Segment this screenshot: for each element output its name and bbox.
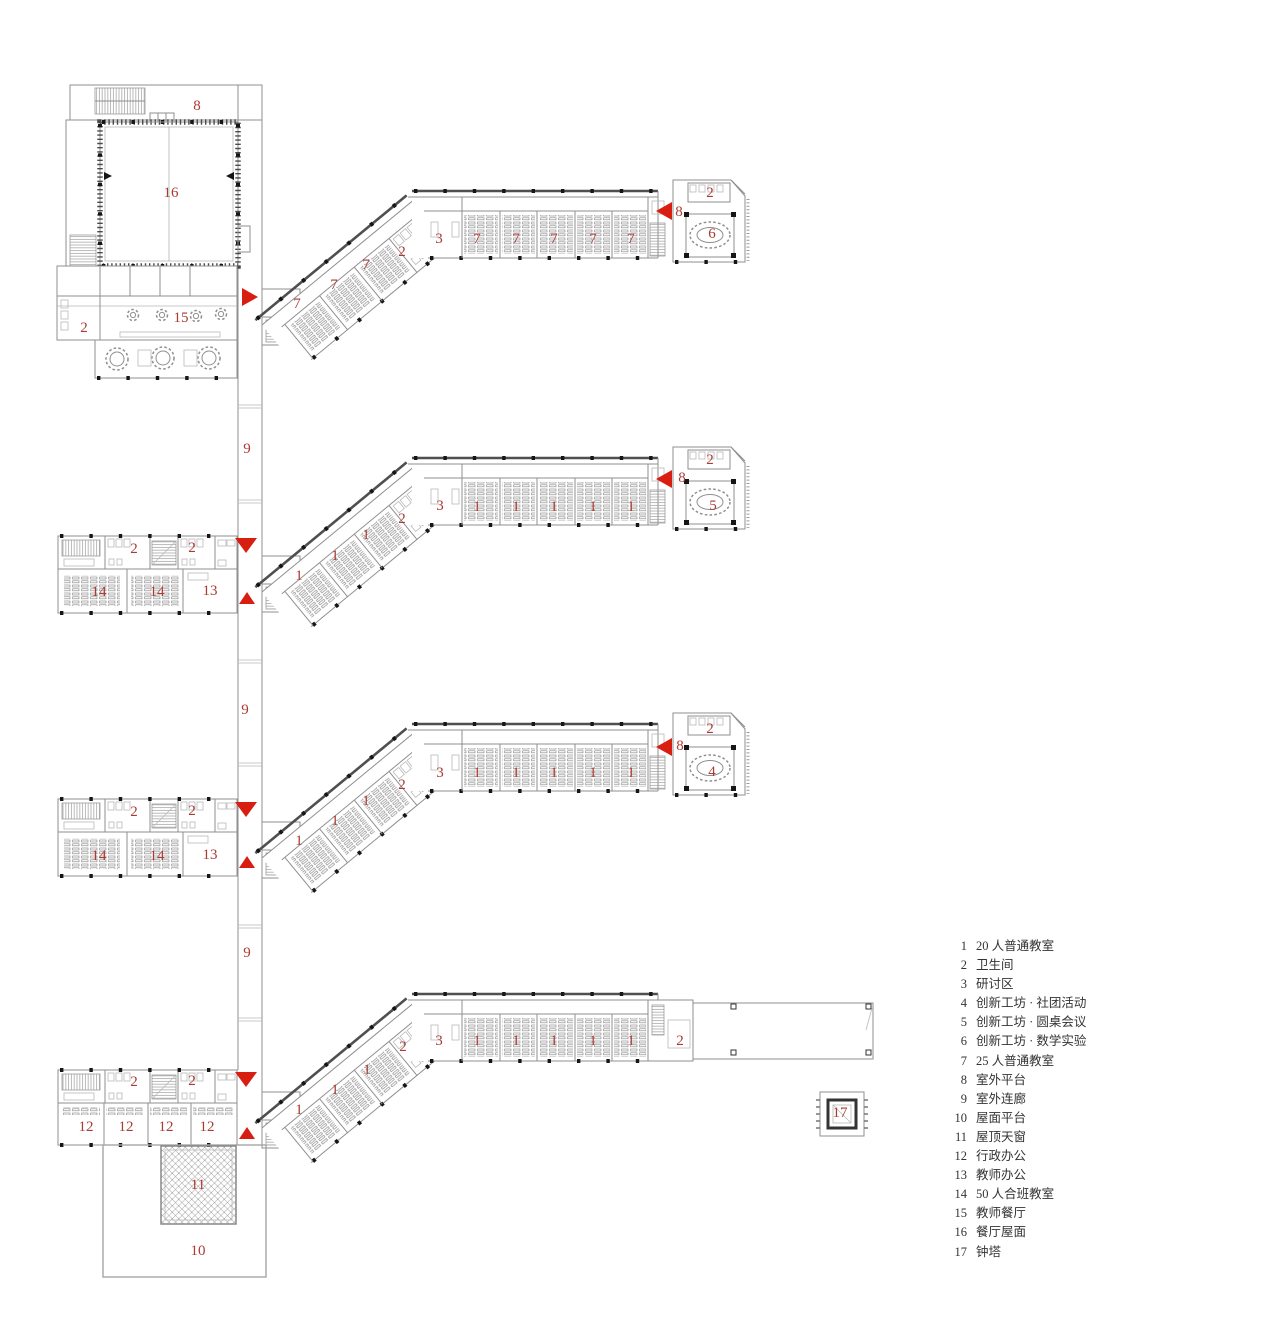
wing-end-block xyxy=(648,1000,693,1061)
legend-number: 15 xyxy=(952,1204,967,1223)
room-label: 1 xyxy=(589,1033,597,1049)
room-label: 1 xyxy=(627,1033,635,1049)
room-label: 1 xyxy=(589,499,597,515)
room-label: 1 xyxy=(295,568,303,584)
room-label: 14 xyxy=(150,848,166,864)
legend-label: 50 人合班教室 xyxy=(976,1185,1054,1204)
entry-marker-up xyxy=(239,592,255,604)
floor-plan-drawing: 8162157772377777826922141413111231111182… xyxy=(0,0,1280,1323)
legend-item: 4创新工坊 · 社团活动 xyxy=(952,994,1086,1013)
entry-marker-up xyxy=(239,856,255,868)
room-label: 9 xyxy=(241,702,249,718)
room-label: 9 xyxy=(243,945,251,961)
room-label: 2 xyxy=(706,721,714,737)
legend-label: 研讨区 xyxy=(976,975,1014,994)
room-label: 3 xyxy=(436,765,444,781)
room-label: 1 xyxy=(627,765,635,781)
room-label: 12 xyxy=(119,1119,134,1135)
legend-item: 11屋顶天窗 xyxy=(952,1128,1086,1147)
room-label: 2 xyxy=(130,1074,138,1090)
room-label: 1 xyxy=(331,1082,339,1098)
legend-number: 14 xyxy=(952,1185,967,1204)
room-label: 7 xyxy=(512,231,520,247)
floor-plan-1-top xyxy=(57,85,748,378)
room-label: 1 xyxy=(473,499,481,515)
room-label: 11 xyxy=(191,1177,205,1193)
legend-number: 12 xyxy=(952,1147,967,1166)
room-label: 5 xyxy=(709,498,717,514)
room-label: 7 xyxy=(293,296,301,312)
room-label: 2 xyxy=(398,777,406,793)
floor-plan-4-bottom xyxy=(58,990,873,1277)
room-label: 8 xyxy=(676,738,684,754)
room-label: 1 xyxy=(363,1062,371,1078)
room-label: 12 xyxy=(200,1119,215,1135)
room-label: 1 xyxy=(362,793,370,809)
entry-marker-right xyxy=(242,288,258,306)
room-label: 12 xyxy=(79,1119,94,1135)
room-label: 2 xyxy=(188,540,196,556)
legend-number: 9 xyxy=(952,1090,967,1109)
room-label: 2 xyxy=(188,1073,196,1089)
room-label: 14 xyxy=(150,584,166,600)
room-label: 16 xyxy=(164,185,180,201)
legend-number: 16 xyxy=(952,1223,967,1242)
legend-item: 13教师办公 xyxy=(952,1166,1086,1185)
banquet-room xyxy=(95,340,237,378)
legend-item: 12行政办公 xyxy=(952,1147,1086,1166)
legend-label: 卫生间 xyxy=(976,956,1014,975)
legend-item: 9室外连廊 xyxy=(952,1090,1086,1109)
legend-number: 1 xyxy=(952,937,967,956)
room-label: 2 xyxy=(130,541,138,557)
legend-item: 10屋面平台 xyxy=(952,1109,1086,1128)
architectural-sheet: 8162157772377777826922141413111231111182… xyxy=(0,0,1280,1323)
room-label: 1 xyxy=(512,1033,520,1049)
floor-plan-2 xyxy=(58,447,748,638)
legend-label: 创新工坊 · 数学实验 xyxy=(976,1032,1086,1051)
roof-platform-strip xyxy=(693,1003,873,1059)
legend-item: 17钟塔 xyxy=(952,1243,1086,1262)
legend-number: 6 xyxy=(952,1032,967,1051)
legend-label: 20 人普通教室 xyxy=(976,937,1054,956)
legend-number: 11 xyxy=(952,1128,967,1147)
room-label: 3 xyxy=(435,231,443,247)
legend-number: 7 xyxy=(952,1052,967,1071)
room-label: 1 xyxy=(512,499,520,515)
room-label: 15 xyxy=(174,310,189,326)
room-label: 7 xyxy=(550,231,558,247)
legend-number: 5 xyxy=(952,1013,967,1032)
room-label: 14 xyxy=(92,584,108,600)
room-label: 7 xyxy=(589,231,597,247)
legend-item: 15教师餐厅 xyxy=(952,1204,1086,1223)
room-label: 7 xyxy=(627,231,635,247)
room-label: 4 xyxy=(708,764,716,780)
room-label: 1 xyxy=(331,813,339,829)
legend-label: 餐厅屋面 xyxy=(976,1223,1026,1242)
room-label: 13 xyxy=(203,583,218,599)
legend-item: 3研讨区 xyxy=(952,975,1086,994)
room-label: 1 xyxy=(550,765,558,781)
room-label: 13 xyxy=(203,847,218,863)
legend-item: 1450 人合班教室 xyxy=(952,1185,1086,1204)
room-label: 2 xyxy=(398,511,406,527)
legend-label: 屋顶天窗 xyxy=(976,1128,1026,1147)
room-label: 8 xyxy=(675,204,683,220)
legend-label: 创新工坊 · 社团活动 xyxy=(976,994,1086,1013)
room-label: 7 xyxy=(330,277,338,293)
room-label: 2 xyxy=(80,320,88,336)
room-label: 3 xyxy=(435,1033,443,1049)
legend-item: 120 人普通教室 xyxy=(952,937,1086,956)
room-label: 1 xyxy=(589,765,597,781)
room-label: 10 xyxy=(191,1243,206,1259)
legend-label: 室外平台 xyxy=(976,1071,1026,1090)
room-label: 1 xyxy=(295,833,303,849)
room-label: 1 xyxy=(295,1102,303,1118)
legend-label: 创新工坊 · 圆桌会议 xyxy=(976,1013,1086,1032)
room-label: 12 xyxy=(159,1119,174,1135)
room-label: 14 xyxy=(92,848,108,864)
room-label: 2 xyxy=(706,452,714,468)
legend: 120 人普通教室2卫生间3研讨区4创新工坊 · 社团活动5创新工坊 · 圆桌会… xyxy=(952,937,1086,1262)
floor-plan-3 xyxy=(58,713,748,904)
room-label: 7 xyxy=(362,257,370,273)
legend-label: 教师餐厅 xyxy=(976,1204,1026,1223)
room-label: 1 xyxy=(550,499,558,515)
room-label: 1 xyxy=(331,548,339,564)
legend-label: 室外连廊 xyxy=(976,1090,1026,1109)
room-label: 2 xyxy=(188,803,196,819)
room-label: 1 xyxy=(473,1033,481,1049)
room-label: 2 xyxy=(676,1033,684,1049)
legend-item: 6创新工坊 · 数学实验 xyxy=(952,1032,1086,1051)
room-label: 2 xyxy=(399,1039,407,1055)
legend-number: 10 xyxy=(952,1109,967,1128)
room-label: 1 xyxy=(512,765,520,781)
legend-item: 8室外平台 xyxy=(952,1071,1086,1090)
entry-marker-down xyxy=(235,1072,257,1087)
legend-item: 16餐厅屋面 xyxy=(952,1223,1086,1242)
room-label: 8 xyxy=(678,470,686,486)
legend-label: 教师办公 xyxy=(976,1166,1026,1185)
legend-item: 725 人普通教室 xyxy=(952,1052,1086,1071)
legend-item: 2卫生间 xyxy=(952,956,1086,975)
room-label: 2 xyxy=(398,244,406,260)
room-label: 1 xyxy=(627,499,635,515)
legend-number: 2 xyxy=(952,956,967,975)
room-label: 17 xyxy=(833,1105,849,1121)
room-label: 1 xyxy=(473,765,481,781)
room-label: 6 xyxy=(708,226,716,242)
legend-item: 5创新工坊 · 圆桌会议 xyxy=(952,1013,1086,1032)
legend-number: 13 xyxy=(952,1166,967,1185)
entry-marker-up xyxy=(239,1127,255,1139)
legend-number: 17 xyxy=(952,1243,967,1262)
legend-number: 4 xyxy=(952,994,967,1013)
legend-label: 行政办公 xyxy=(976,1147,1026,1166)
room-label: 2 xyxy=(130,804,138,820)
room-label: 9 xyxy=(243,441,251,457)
legend-label: 屋面平台 xyxy=(976,1109,1026,1128)
room-label: 1 xyxy=(362,527,370,543)
room-label: 7 xyxy=(473,231,481,247)
roof-terrace-10 xyxy=(103,1145,266,1277)
legend-number: 8 xyxy=(952,1071,967,1090)
room-label: 8 xyxy=(193,98,201,114)
legend-number: 3 xyxy=(952,975,967,994)
room-label: 2 xyxy=(706,185,714,201)
room-label: 1 xyxy=(550,1033,558,1049)
legend-label: 钟塔 xyxy=(976,1243,1001,1262)
room-label: 3 xyxy=(436,498,444,514)
legend-label: 25 人普通教室 xyxy=(976,1052,1054,1071)
